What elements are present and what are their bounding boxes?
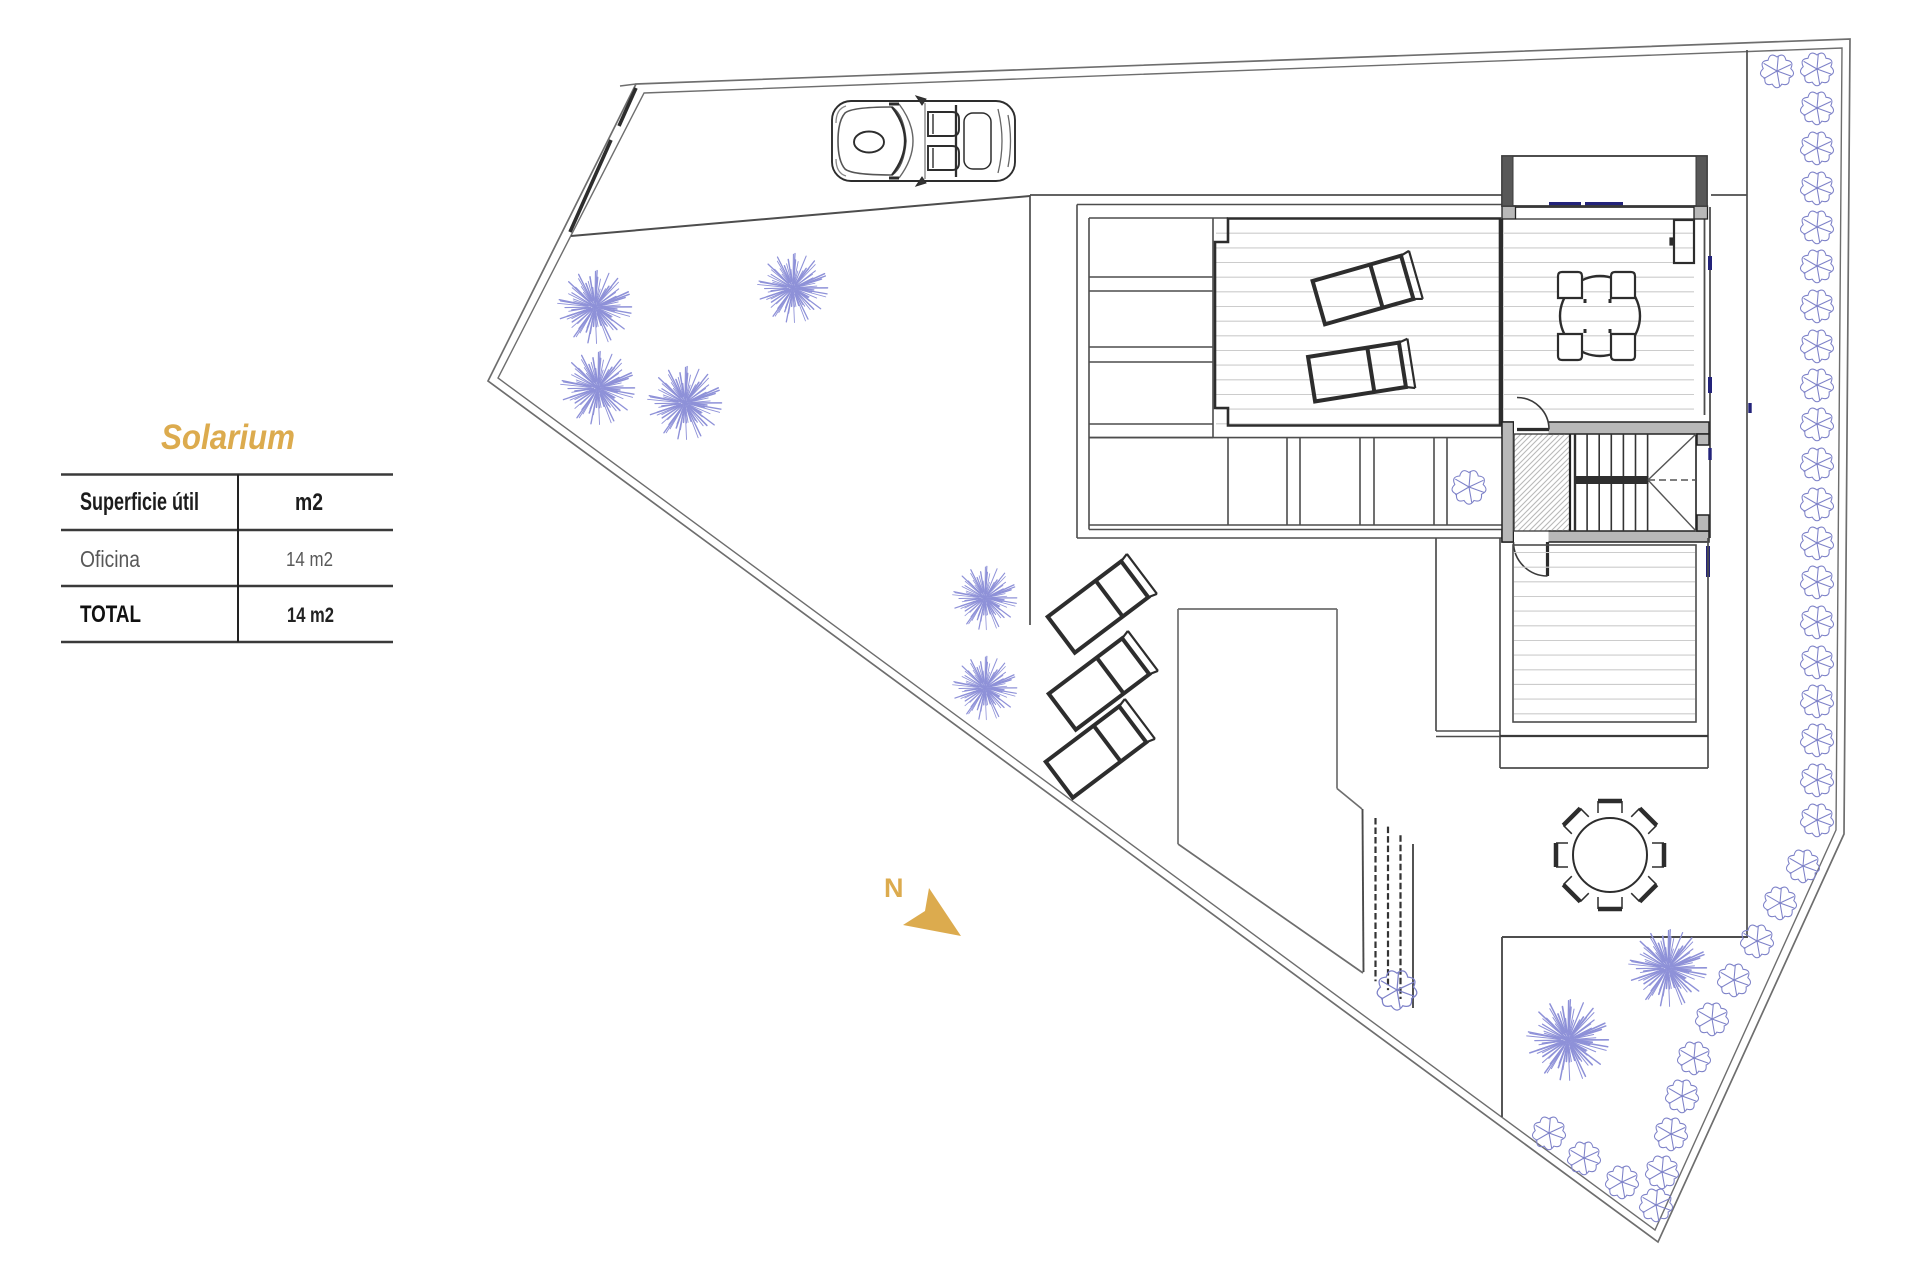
- svg-text:TOTAL: TOTAL: [80, 601, 141, 628]
- svg-text:Oficina: Oficina: [80, 546, 140, 572]
- svg-text:m2: m2: [295, 489, 323, 516]
- svg-text:N: N: [884, 873, 904, 903]
- svg-text:Solarium: Solarium: [161, 418, 295, 457]
- svg-text:14 m2: 14 m2: [286, 549, 333, 571]
- svg-text:Superficie útil: Superficie útil: [80, 488, 199, 516]
- svg-text:14 m2: 14 m2: [287, 604, 334, 627]
